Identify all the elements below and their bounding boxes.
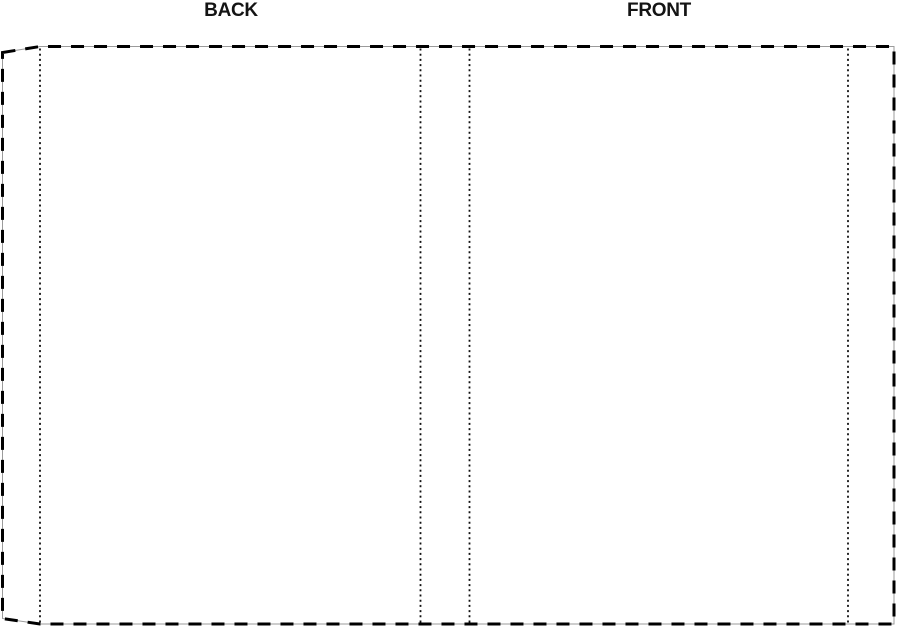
- outer-boundary-dashes: [3, 47, 895, 625]
- jacket-outline-drawing: [0, 0, 900, 631]
- outer-boundary-baseline: [3, 47, 895, 625]
- book-jacket-template: BACK FRONT: [0, 0, 900, 631]
